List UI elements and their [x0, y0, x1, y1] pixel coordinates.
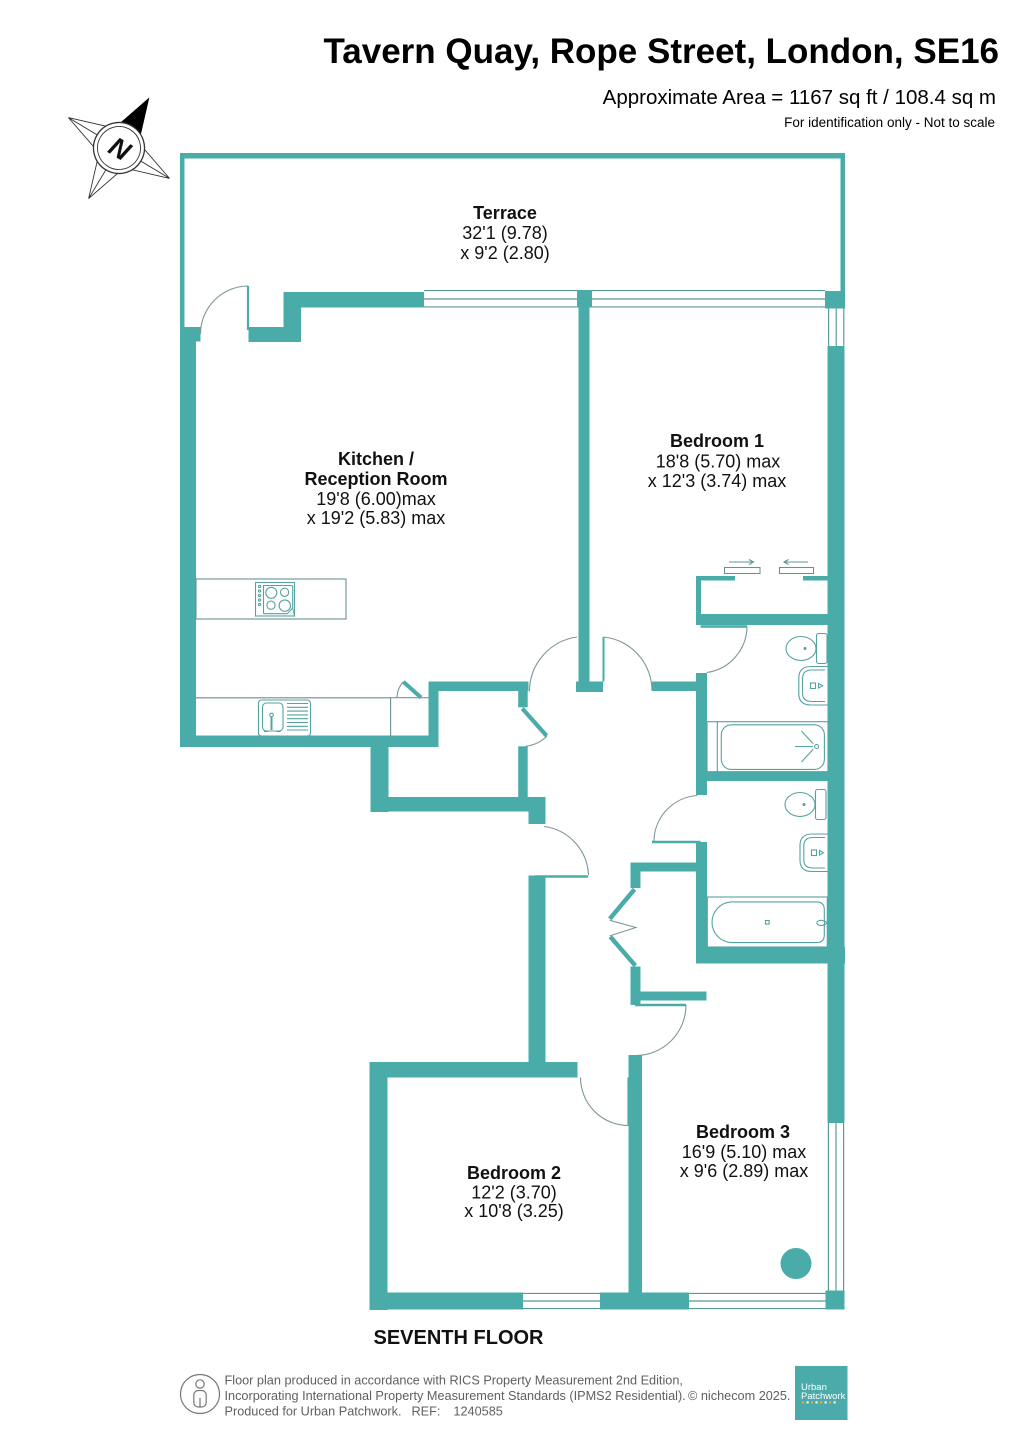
svg-text:Bedroom 2: Bedroom 2	[467, 1163, 561, 1183]
svg-text:Produced for Urban Patchwork.R: Produced for Urban Patchwork.REF:1240585	[225, 1405, 503, 1419]
svg-text:12'2 (3.70): 12'2 (3.70)	[471, 1183, 557, 1203]
svg-text:x 9'6 (2.89) max: x 9'6 (2.89) max	[680, 1161, 809, 1181]
svg-text:16'9 (5.10) max: 16'9 (5.10) max	[682, 1142, 807, 1162]
svg-text:Kitchen /: Kitchen /	[338, 449, 414, 469]
svg-text:x 12'3 (3.74) max: x 12'3 (3.74) max	[648, 471, 787, 491]
svg-text:Tavern Quay, Rope Street, Lond: Tavern Quay, Rope Street, London, SE16	[323, 32, 999, 71]
svg-text:Floor plan produced in accorda: Floor plan produced in accordance with R…	[225, 1374, 683, 1388]
svg-text:18'8 (5.70) max: 18'8 (5.70) max	[656, 452, 781, 472]
svg-text:SEVENTH FLOOR: SEVENTH FLOOR	[373, 1327, 544, 1349]
svg-text:Bedroom 1: Bedroom 1	[670, 431, 764, 451]
svg-text:Approximate Area = 1167 sq ft: Approximate Area = 1167 sq ft / 108.4 sq…	[603, 86, 996, 109]
svg-text:32'1 (9.78): 32'1 (9.78)	[462, 223, 548, 243]
svg-text:Reception Room: Reception Room	[304, 469, 447, 489]
svg-text:For identification only - Not: For identification only - Not to scale	[784, 115, 995, 130]
svg-text:x 10'8 (3.25): x 10'8 (3.25)	[464, 1201, 564, 1221]
svg-text:© nichecom 2025.: © nichecom 2025.	[688, 1389, 790, 1403]
svg-text:Bedroom 3: Bedroom 3	[696, 1122, 790, 1142]
svg-text:19'8 (6.00)max: 19'8 (6.00)max	[316, 489, 436, 509]
svg-text:Patchwork: Patchwork	[801, 1391, 846, 1402]
svg-text:x 9'2 (2.80): x 9'2 (2.80)	[460, 243, 549, 263]
svg-text:x 19'2 (5.83) max: x 19'2 (5.83) max	[307, 508, 446, 528]
svg-text:Incorporating International Pr: Incorporating International Property Mea…	[225, 1389, 686, 1403]
svg-text:Terrace: Terrace	[473, 203, 537, 223]
